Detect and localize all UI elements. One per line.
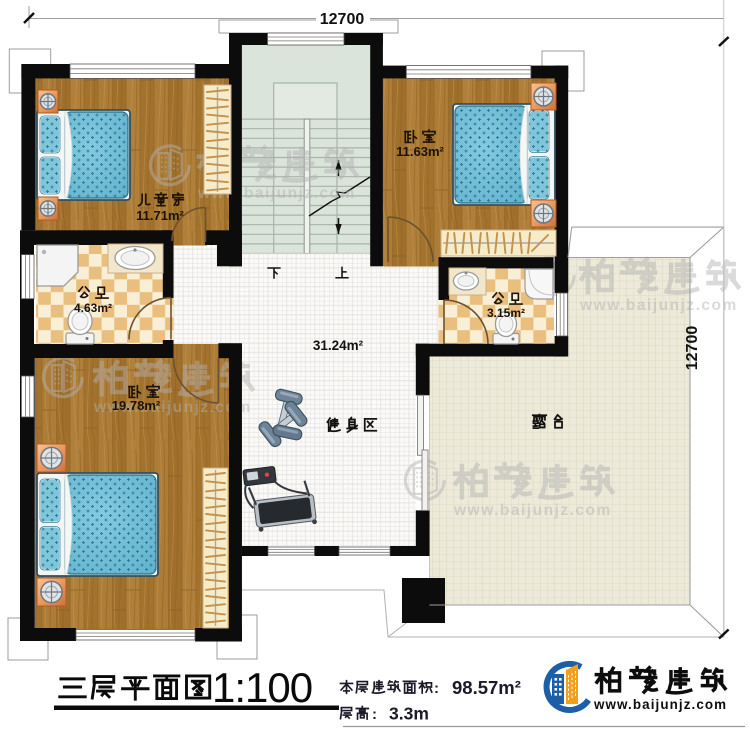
svg-text:1:100: 1:100 [212, 664, 312, 711]
svg-text:12700: 12700 [320, 11, 365, 28]
svg-text:11.71m²: 11.71m² [136, 208, 184, 223]
svg-text:19.78m²: 19.78m² [112, 398, 161, 413]
svg-text:31.24m²: 31.24m² [313, 338, 364, 353]
svg-text:12700: 12700 [684, 326, 701, 371]
svg-text::: : [372, 706, 377, 723]
svg-text:www.baijunjz.com: www.baijunjz.com [593, 697, 727, 712]
svg-text:www.baijunjz.com: www.baijunjz.com [579, 297, 738, 314]
svg-text:4.63m²: 4.63m² [74, 301, 112, 315]
svg-text:www.baijunjz.com: www.baijunjz.com [453, 502, 612, 519]
svg-text::: : [434, 680, 439, 697]
svg-text:3.15m²: 3.15m² [487, 306, 525, 320]
svg-text:11.63m²: 11.63m² [396, 144, 444, 159]
svg-text:3.3m: 3.3m [389, 704, 429, 724]
svg-text:98.57m²: 98.57m² [452, 677, 521, 698]
